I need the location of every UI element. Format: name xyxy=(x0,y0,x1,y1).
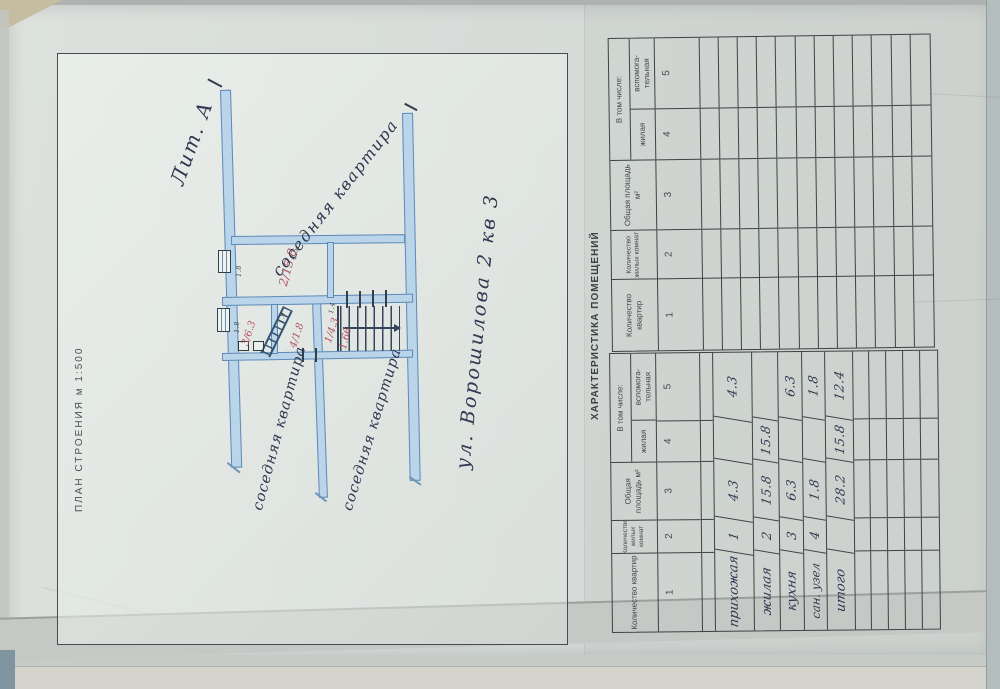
table-row: сан. узел 4 1.8 1.8 xyxy=(802,352,828,630)
room-aux-area: 1.8 xyxy=(802,350,825,420)
table-row-total: итого 28.2 15.8 12.4 xyxy=(825,351,856,629)
dimension-window: 1.8 xyxy=(233,321,241,333)
scan-right-edge xyxy=(986,0,1000,689)
total-rooms xyxy=(826,515,853,552)
room-aux-area: 6.3 xyxy=(778,350,802,420)
table-characteristics-filled: Количество квартир Количество жилых комн… xyxy=(609,350,941,633)
column-number: 2 xyxy=(657,229,701,279)
plan-title: ПЛАН СТРОЕНИЯ м 1:500 xyxy=(74,347,85,512)
window-symbol xyxy=(217,308,230,332)
dimension-window: 1.8 xyxy=(235,265,243,277)
room-living-area xyxy=(714,416,752,464)
room-name: сан. узел xyxy=(804,549,827,632)
header-auxiliary-area: вспомога- тельная xyxy=(631,354,655,421)
header-total-area: Общая площадь м² xyxy=(610,160,656,230)
room-aux-area: 4.3 xyxy=(713,350,752,423)
table-row: кухня 3 6.3 6.3 xyxy=(778,352,805,630)
paper-fold-lower xyxy=(0,666,1000,689)
header-total-area: Общая площадь м² xyxy=(611,462,656,520)
column-number: 4 xyxy=(656,420,700,462)
room-total-area: 15.8 xyxy=(753,459,778,521)
door-jamb-mark xyxy=(385,290,387,307)
room-total-area: 1.8 xyxy=(803,458,826,519)
room-total-area: 6.3 xyxy=(779,458,803,519)
table-characteristics-empty: Количество квартир Количество жилых комн… xyxy=(608,34,935,352)
header-living-rooms: Количество жилых комнат xyxy=(611,229,656,279)
room-name: жилая xyxy=(754,549,780,633)
room-total-area: 4.3 xyxy=(715,458,753,522)
total-living-area: 15.8 xyxy=(825,416,852,462)
tables-title: ХАРАКТЕРИСТИКА ПОМЕЩЕНИЙ xyxy=(590,231,601,420)
room-name: прихожая xyxy=(715,548,754,634)
table-row: жилая 2 15.8 15.8 xyxy=(752,352,781,630)
total-area: 28.2 xyxy=(826,458,853,520)
plan-frame xyxy=(57,53,568,645)
column-number: 5 xyxy=(654,38,699,108)
header-group-including: В том числе: жилая вспомога- тельная xyxy=(610,354,656,463)
room-count: 1 xyxy=(715,515,753,554)
header-group-including: В том числе: жилая вспомога- тельная xyxy=(609,38,655,160)
scan-left-edge xyxy=(0,10,9,640)
door-jamb-mark xyxy=(372,290,374,307)
header-apartments: Количество квартир xyxy=(612,552,658,632)
room-living-area xyxy=(779,417,802,462)
room-count: 4 xyxy=(804,516,826,552)
room-count: 2 xyxy=(754,516,779,553)
column-number: 3 xyxy=(656,159,701,229)
empty-row xyxy=(920,351,940,629)
column-number: 5 xyxy=(656,353,700,420)
room-name: кухня xyxy=(780,549,804,632)
header-auxiliary-area: вспомога- тельная xyxy=(630,38,655,108)
fixture-sink xyxy=(253,341,264,351)
door-jamb-mark xyxy=(315,348,317,362)
header-living-area: жилая xyxy=(631,108,655,160)
scan-corner-bottom-left xyxy=(0,650,15,689)
column-number: 1 xyxy=(658,278,703,350)
room-aux-area xyxy=(752,350,778,421)
total-label: итого xyxy=(827,548,855,632)
header-including: В том числе: xyxy=(609,39,632,160)
room-count: 3 xyxy=(780,516,803,553)
wall-divider-living xyxy=(327,242,334,298)
header-including: В том числе: xyxy=(610,354,632,462)
window-symbol xyxy=(218,250,231,273)
column-number: 3 xyxy=(657,461,701,519)
column-number: 4 xyxy=(655,107,699,159)
empty-row xyxy=(910,35,934,347)
wall-apartment-top xyxy=(231,234,405,245)
total-aux-area: 12.4 xyxy=(825,349,853,420)
room-living-area: 15.8 xyxy=(753,417,778,463)
table-row: прихожая 1 4.3 4.3 xyxy=(713,353,755,631)
scanned-page: ПЛАН СТРОЕНИЯ м 1:500 Лит. А 2/15.8 3/6.… xyxy=(0,0,1000,689)
column-number: 2 xyxy=(658,519,702,552)
room-living-area xyxy=(803,417,825,462)
header-apartments: Количество квартир xyxy=(612,279,658,351)
header-living-rooms: Количество жилых комнат xyxy=(612,519,657,552)
header-living-area: жилая xyxy=(632,420,656,462)
column-number: 1 xyxy=(658,552,703,632)
